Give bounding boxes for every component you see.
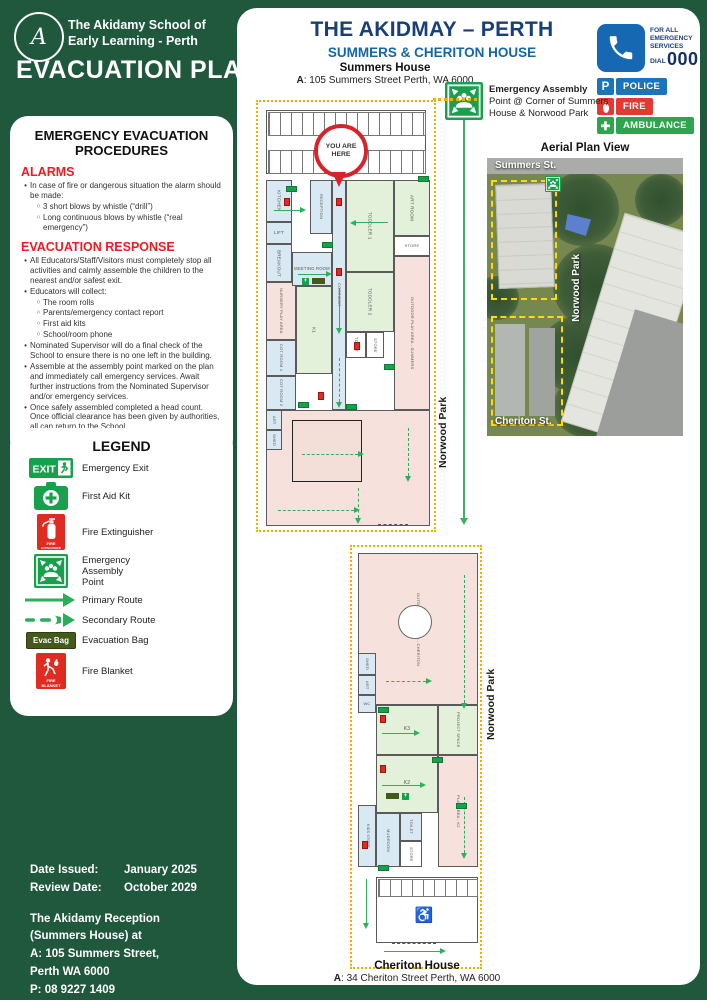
- room-outdoor-play-area-summers: OUTDOOR PLAY AREA - SUMMERS: [394, 256, 430, 410]
- room-mudroom: MUDROOM: [376, 813, 400, 867]
- legend-label: First Aid Kit: [82, 491, 130, 502]
- room-art: ART: [266, 410, 282, 430]
- procedure-item: •Assemble at the assembly point marked o…: [21, 362, 222, 402]
- service-label: POLICE: [616, 78, 667, 95]
- main-panel: THE AKIDMAY – PERTH SUMMERS & CHERITON H…: [237, 8, 700, 985]
- plan-title: THE AKIDMAY – PERTH: [237, 18, 627, 42]
- norwood-park-label: Norwood Park: [437, 338, 449, 468]
- fire-extinguisher-marker: [354, 342, 360, 350]
- you-are-here-pin: [332, 172, 346, 187]
- footer-row: Review Date:October 2029: [30, 880, 197, 898]
- evac-bag-marker: [312, 278, 325, 284]
- assembly-note: Emergency Assembly Point @ Corner of Sum…: [489, 84, 609, 120]
- room-k1: K1: [296, 286, 332, 374]
- evac-bag-marker: [386, 793, 399, 799]
- primary-route-arrow: [384, 951, 440, 952]
- alarms-list: •In case of fire or dangerous situation …: [21, 181, 222, 233]
- secondary-route-arrow: [464, 575, 465, 703]
- room-wc: WC: [358, 695, 376, 713]
- assembly-route-line: [463, 120, 465, 518]
- legend-label: Emergency Assembly Point: [82, 555, 130, 588]
- primary-route-arrow: [382, 733, 414, 734]
- gate-shape: [392, 943, 436, 944]
- room-toddler-2: TODDLER 2: [346, 272, 394, 332]
- evacuation-plan-page: A The Akidamy School of Early Learning -…: [0, 0, 707, 1000]
- legend-label: Fire Blanket: [82, 666, 133, 677]
- exit-sign-marker: [432, 757, 443, 763]
- exit-sign-marker: [322, 242, 333, 248]
- room-shed: SHED: [266, 430, 282, 450]
- room-project-space: PROJECT SPACE: [438, 705, 478, 755]
- secondary-route-icon: [20, 612, 82, 628]
- room-cot-room-2: COT ROOM 2: [266, 376, 296, 410]
- exit-sign-marker: [298, 402, 309, 408]
- assembly-point-icon: [20, 554, 82, 588]
- legend-item: Emergency Assembly Point: [20, 554, 223, 588]
- secondary-route-arrow: [358, 488, 359, 518]
- legend-item: Primary Route: [20, 592, 223, 608]
- reception-line: The Akidamy Reception: [30, 911, 197, 929]
- procedures-title: EMERGENCY EVACUATION PROCEDURES: [21, 128, 222, 158]
- fire-extinguisher-icon: FIREEXTINGUISHER: [20, 514, 82, 550]
- cheriton-house-heading: Cheriton House A: 34 Cheriton Street Per…: [297, 960, 537, 984]
- dial-label: DIAL: [650, 58, 666, 65]
- exit-sign-marker: [378, 707, 389, 713]
- service-label: AMBULANCE: [616, 117, 694, 134]
- reception-address: The Akidamy Reception(Summers House) atA…: [30, 911, 197, 1000]
- sand-shape: [398, 605, 432, 639]
- service-badge-ambulance: ✚AMBULANCE: [597, 117, 694, 134]
- response-heading: EVACUATION RESPONSE: [21, 240, 222, 254]
- evac-bag-icon: Evac Bag: [20, 632, 82, 649]
- room-nursery-play-area: NURSERY PLAY AREA: [266, 282, 296, 340]
- cheriton-st-label: Cheriton St.: [495, 416, 552, 427]
- primary-route-arrow: [356, 222, 388, 223]
- procedure-subitem: ○Parents/emergency contact report: [21, 308, 222, 318]
- procedure-subitem: ○Long continuous blows by whistle (“real…: [21, 213, 222, 233]
- emergency-exit-icon: EXIT: [20, 458, 82, 478]
- assembly-point-icon: [545, 176, 561, 197]
- legend-label: Fire Extinguisher: [82, 527, 153, 538]
- first-aid-icon: [20, 482, 82, 510]
- procedure-subitem: ○3 short blows by whistle (“drill”): [21, 202, 222, 212]
- reception-line: Perth WA 6000: [30, 964, 197, 982]
- alarms-heading: ALARMS: [21, 165, 222, 179]
- room-play-area-k2: PLAY AREA - K2: [438, 755, 478, 867]
- legend-item: FIREBLANKETFire Blanket: [20, 653, 223, 689]
- svg-text:EXTINGUISHER: EXTINGUISHER: [41, 546, 61, 550]
- fire-extinguisher-marker: [380, 765, 386, 773]
- secondary-route-arrow: [302, 454, 358, 455]
- page-title: EVACUATION PLAN: [16, 56, 260, 85]
- room-reception: RECEPTION: [310, 180, 332, 234]
- primary-route-arrow: [366, 879, 367, 923]
- procedure-item: •Nominated Supervisor will do a final ch…: [21, 341, 222, 361]
- response-list: •All Educators/Staff/Visitors must compl…: [21, 256, 222, 432]
- room-kids-store: KIDS STORE: [358, 805, 376, 867]
- procedure-subitem: ○The room rolls: [21, 298, 222, 308]
- summers-house-name: Summers House: [265, 62, 505, 74]
- legend-item: EXITEmergency Exit: [20, 458, 223, 478]
- procedure-subitem: ○First aid kits: [21, 319, 222, 329]
- legend-item: Secondary Route: [20, 612, 223, 628]
- summers-floorplan: YOU ARE HERE PARKINGKITCHENLIFTBREAKOUTN…: [256, 100, 436, 532]
- legend-label: Evacuation Bag: [82, 635, 149, 646]
- room-store: STORE: [394, 236, 430, 256]
- first-aid-marker: +: [402, 793, 409, 800]
- legend-label: Secondary Route: [82, 615, 155, 626]
- room-k2: K2: [376, 755, 438, 813]
- phone-icon: [597, 24, 645, 72]
- secondary-route-arrow: [386, 681, 426, 682]
- legend-panel: LEGEND EXITEmergency ExitFirst Aid KitFI…: [10, 428, 233, 716]
- room-store: STORE: [400, 841, 422, 867]
- svg-text:BLANKET: BLANKET: [41, 683, 61, 688]
- legend-item: FIREEXTINGUISHERFire Extinguisher: [20, 514, 223, 550]
- assembly-route-arrowhead: [460, 518, 468, 529]
- fire-extinguisher-marker: [336, 198, 342, 206]
- room-toilet: TOILET: [400, 813, 422, 841]
- boundary-connector: [433, 98, 477, 101]
- primary-route-icon: [20, 592, 82, 608]
- footer-row: Date Issued:January 2025: [30, 862, 197, 880]
- procedure-item: •All Educators/Staff/Visitors must compl…: [21, 256, 222, 286]
- footer-dates: Date Issued:January 2025Review Date:Octo…: [30, 862, 197, 898]
- fire-extinguisher-marker: [284, 198, 290, 206]
- exit-sign-marker: [286, 186, 297, 192]
- legend-label: Primary Route: [82, 595, 143, 606]
- primary-route-arrow: [339, 288, 340, 328]
- cheriton-house-address: A: 34 Cheriton Street Perth, WA 6000: [297, 973, 537, 984]
- secondary-route-arrow: [339, 358, 340, 402]
- aerial-photo: Summers St. Norwood Park Cheriton St.: [487, 158, 683, 436]
- room-art-room: ART ROOM: [394, 180, 430, 236]
- assembly-point-icon: [445, 82, 483, 125]
- legend-label: Emergency Exit: [82, 463, 149, 474]
- service-label: FIRE: [616, 98, 653, 115]
- evac-bag-badge: Evac Bag: [26, 632, 76, 649]
- summers-st-label: Summers St.: [495, 160, 556, 171]
- room-lift: LIFT: [266, 222, 292, 244]
- fire-extinguisher-marker: [336, 268, 342, 276]
- aerial-title: Aerial Plan View: [487, 142, 683, 154]
- gate-shape: [378, 524, 408, 525]
- cheriton-house-name: Cheriton House: [297, 960, 537, 972]
- reception-line: (Summers House) at: [30, 928, 197, 946]
- exit-sign-marker: [384, 364, 395, 370]
- cheriton-lot-outline: [491, 316, 563, 426]
- svg-text:EXIT: EXIT: [33, 464, 57, 476]
- primary-route-arrow: [382, 785, 420, 786]
- legend-item: First Aid Kit: [20, 482, 223, 510]
- fire-extinguisher-marker: [362, 841, 368, 849]
- procedure-item: •In case of fire or dangerous situation …: [21, 181, 222, 201]
- deck-shape: [292, 420, 362, 482]
- disabled-parking-symbol: ♿: [412, 903, 436, 927]
- exit-sign-marker: [378, 865, 389, 871]
- secondary-route-arrow: [278, 510, 354, 511]
- norwood-park-label: Norwood Park: [571, 254, 582, 322]
- norwood-park-label: Norwood Park: [485, 600, 497, 740]
- reception-line: A: 105 Summers Street,: [30, 946, 197, 964]
- exit-sign-marker: [418, 176, 429, 182]
- reception-line: P: 08 9227 1409: [30, 982, 197, 1000]
- exit-sign-marker: [346, 404, 357, 410]
- comb-shape: [378, 879, 478, 897]
- footer-info: Date Issued:January 2025Review Date:Octo…: [30, 862, 197, 1000]
- summers-lot-outline: [491, 180, 557, 300]
- room-shed: SHED: [358, 653, 376, 675]
- you-are-here-marker: YOU ARE HERE: [314, 124, 368, 178]
- procedure-subitem: ○School/room phone: [21, 330, 222, 340]
- procedures-panel: EMERGENCY EVACUATION PROCEDURES ALARMS •…: [10, 116, 233, 458]
- dial-number: 000: [667, 49, 699, 70]
- cheriton-floorplan: OUTDOOR PLAY AREA - CHERITONSHEDARTWCK3P…: [350, 545, 482, 969]
- legend-title: LEGEND: [20, 438, 223, 454]
- org-name: The Akidamy School of Early Learning - P…: [68, 17, 234, 50]
- emergency-services-text: FOR ALL EMERGENCY SERVICES: [650, 27, 702, 50]
- room-cot-room-1: COT ROOM 1: [266, 340, 296, 376]
- fire-extinguisher-marker: [318, 392, 324, 400]
- legend-list: EXITEmergency ExitFirst Aid KitFIREEXTIN…: [20, 458, 223, 689]
- primary-route-arrow: [298, 274, 326, 275]
- fire-extinguisher-marker: [380, 715, 386, 723]
- room-store: STORE: [366, 332, 384, 358]
- first-aid-marker: +: [302, 278, 309, 285]
- procedure-item: •Educators will collect:: [21, 287, 222, 297]
- room-art: ART: [358, 675, 376, 695]
- legend-item: Evac BagEvacuation Bag: [20, 632, 223, 649]
- secondary-route-arrow: [408, 428, 409, 476]
- fire-blanket-icon: FIREBLANKET: [20, 653, 82, 689]
- plan-subtitle: SUMMERS & CHERITON HOUSE: [237, 45, 627, 60]
- akidamy-logo-icon: A: [14, 12, 64, 62]
- primary-route-arrow: [274, 210, 300, 211]
- exit-sign-marker: [456, 803, 467, 809]
- svg-text:FIRE: FIRE: [46, 541, 55, 546]
- room-breakout: BREAKOUT: [266, 244, 292, 282]
